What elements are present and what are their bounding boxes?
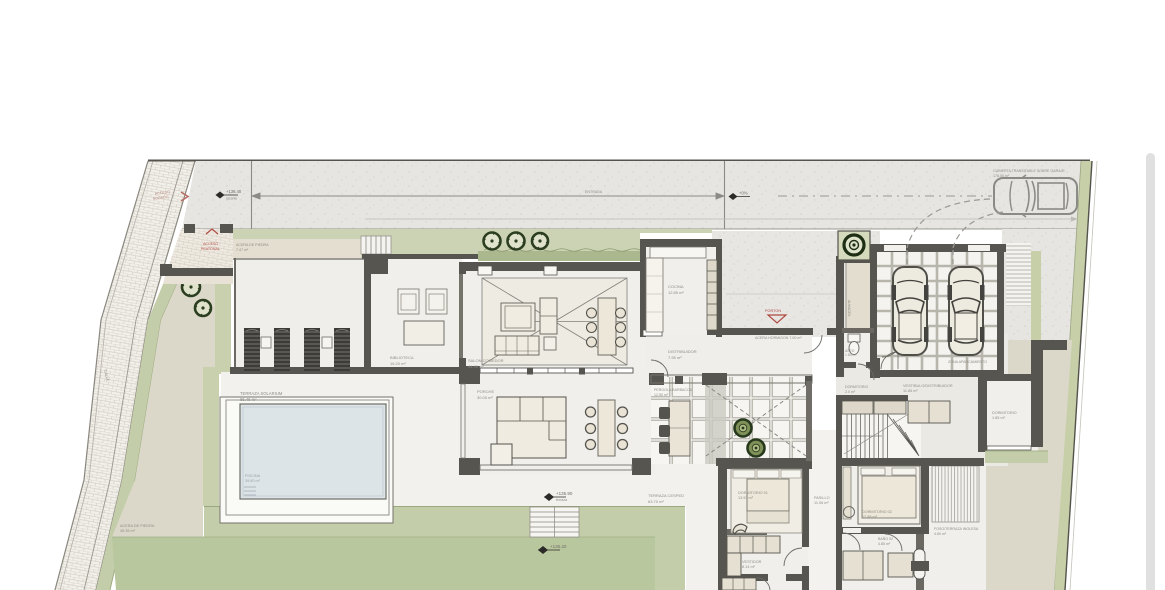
svg-text:11.06 m²: 11.06 m²	[814, 501, 829, 505]
svg-text:rasante: rasante	[226, 197, 237, 201]
svg-text:44.90 m²: 44.90 m²	[468, 364, 484, 369]
svg-text:+136.40: +136.40	[226, 189, 242, 194]
svg-text:ALMACEN: ALMACEN	[847, 300, 851, 317]
svg-text:4.85 m²: 4.85 m²	[878, 542, 891, 546]
svg-text:PERGOLA BARBACOA: PERGOLA BARBACOA	[654, 388, 693, 392]
svg-text:FOSO/TERRAZA INGLESA: FOSO/TERRAZA INGLESA	[934, 527, 979, 531]
svg-text:7.47 m²: 7.47 m²	[236, 248, 249, 252]
svg-text:DORMITORIO 01: DORMITORIO 01	[738, 491, 768, 495]
svg-text:1.85 m²: 1.85 m²	[992, 416, 1006, 420]
svg-text:TERRAZA SOLARIUM: TERRAZA SOLARIUM	[240, 391, 283, 396]
svg-text:ACCESO: ACCESO	[203, 242, 218, 246]
svg-text:ACERA DE PIEDRA: ACERA DE PIEDRA	[236, 243, 269, 247]
svg-text:+135.20: +135.20	[550, 544, 567, 549]
svg-text:PASILLO: PASILLO	[814, 496, 830, 500]
svg-text:63.70 m²: 63.70 m²	[648, 499, 664, 504]
svg-text:8.14 m²: 8.14 m²	[742, 565, 756, 569]
svg-text:CUBIERTA TRANSITABLE SOBRE GAR: CUBIERTA TRANSITABLE SOBRE GARAJE	[993, 169, 1065, 173]
svg-text:SALON COMEDOR: SALON COMEDOR	[468, 358, 504, 363]
svg-text:30.05 m²: 30.05 m²	[477, 395, 493, 400]
svg-text:TERRAZA CESPED: TERRAZA CESPED	[648, 493, 684, 498]
svg-text:DORMITORIO 02: DORMITORIO 02	[862, 510, 892, 514]
svg-text:DISTRIBUIDOR: DISTRIBUIDOR	[668, 349, 697, 354]
svg-text:178.00 m²: 178.00 m²	[993, 174, 1010, 178]
svg-text:PISCINA: PISCINA	[245, 474, 261, 478]
svg-text:+0%: +0%	[739, 191, 748, 196]
svg-text:ZONA APARCAMIENTO: ZONA APARCAMIENTO	[948, 360, 987, 364]
svg-text:13.93 m²: 13.93 m²	[738, 496, 754, 500]
svg-text:PEATONAL: PEATONAL	[201, 247, 220, 251]
svg-text:DORMITORIO: DORMITORIO	[992, 411, 1017, 415]
svg-text:terraza: terraza	[556, 498, 567, 502]
svg-text:12.85 m²: 12.85 m²	[668, 290, 684, 295]
svg-text:PORCHE: PORCHE	[477, 389, 494, 394]
svg-text:4.60 m²: 4.60 m²	[934, 532, 947, 536]
svg-text:45.35 m²: 45.35 m²	[120, 529, 136, 533]
svg-text:BAÑO 02: BAÑO 02	[878, 536, 893, 541]
svg-text:2.0 m²: 2.0 m²	[845, 390, 856, 394]
svg-text:ACERA DE PIEDRA: ACERA DE PIEDRA	[120, 524, 155, 528]
svg-text:12.88 m²: 12.88 m²	[862, 515, 878, 519]
svg-text:12.50 m²: 12.50 m²	[654, 393, 669, 397]
svg-text:ENTRADA: ENTRADA	[585, 190, 603, 194]
svg-text:1.84 m²: 1.84 m²	[845, 353, 857, 357]
svg-text:DORMITORIO: DORMITORIO	[845, 385, 868, 389]
svg-text:+135.90: +135.90	[556, 491, 573, 496]
svg-text:7.95 m²: 7.95 m²	[668, 355, 682, 360]
svg-text:PORTON: PORTON	[765, 309, 781, 313]
svg-text:BIBLIOTECA: BIBLIOTECA	[390, 355, 414, 360]
svg-text:85.46 m²: 85.46 m²	[240, 397, 257, 402]
svg-text:ACERA HORMIGON 7.00 m²: ACERA HORMIGON 7.00 m²	[755, 336, 802, 340]
svg-text:16.20 m²: 16.20 m²	[390, 361, 406, 366]
svg-text:39.60 m²: 39.60 m²	[245, 479, 261, 483]
svg-text:COCINA: COCINA	[668, 284, 684, 289]
svg-text:11.85 m²: 11.85 m²	[903, 389, 918, 393]
svg-text:VESTIDOR: VESTIDOR	[742, 560, 762, 564]
svg-text:VESTIBULO/DISTRIBUIDOR: VESTIBULO/DISTRIBUIDOR	[903, 384, 953, 388]
